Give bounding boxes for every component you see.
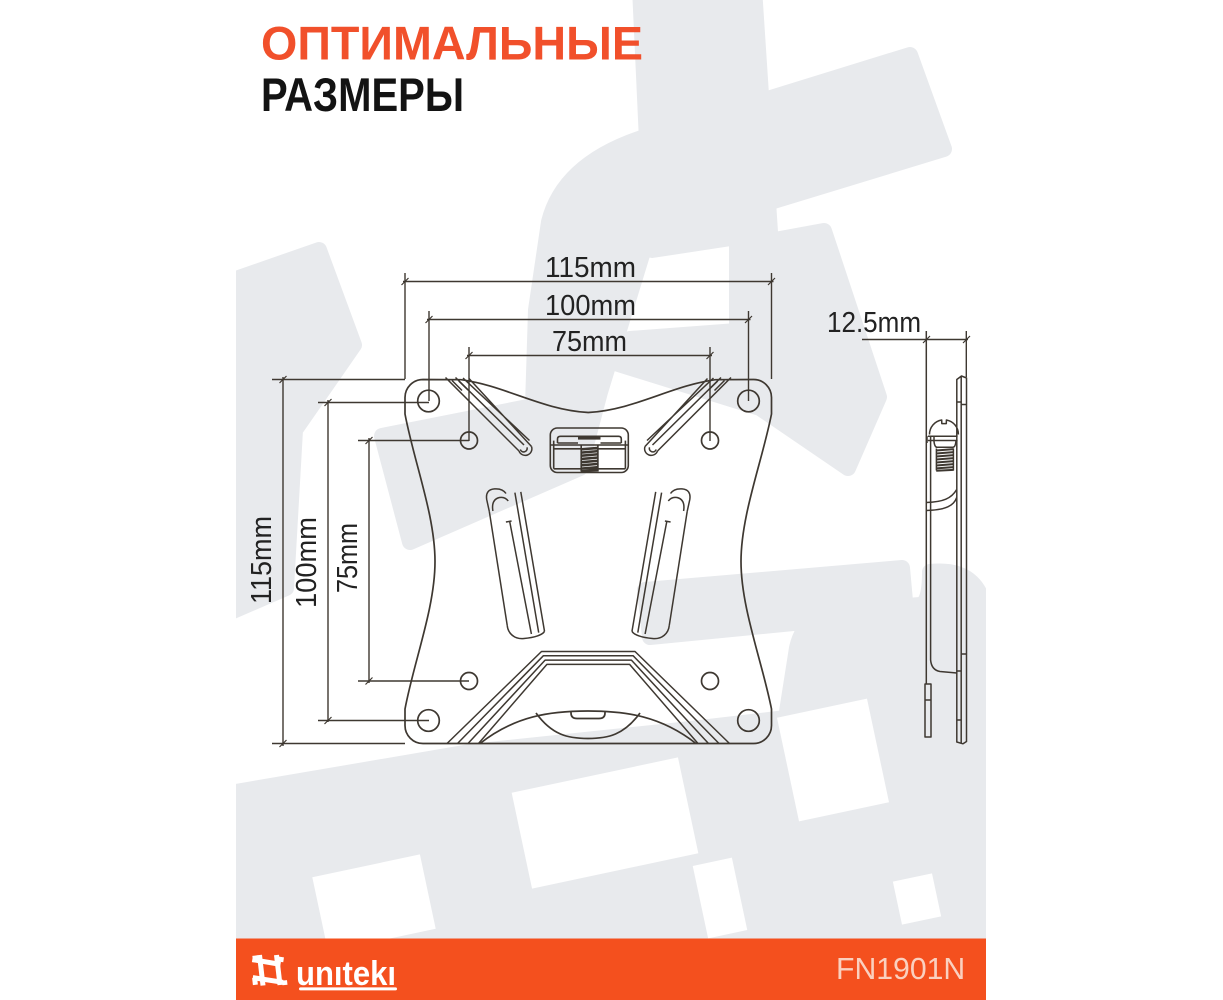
svg-text:FN1901N: FN1901N — [836, 953, 965, 986]
svg-text:12.5mm: 12.5mm — [827, 307, 921, 339]
svg-text:ОПТИМАЛЬНЫЕ: ОПТИМАЛЬНЫЕ — [261, 18, 643, 71]
svg-text:РАЗМЕРЫ: РАЗМЕРЫ — [261, 69, 464, 122]
svg-text:75mm: 75mm — [332, 523, 364, 593]
svg-text:115mm: 115mm — [246, 516, 278, 604]
svg-text:115mm: 115mm — [545, 252, 636, 284]
svg-text:100mm: 100mm — [291, 517, 323, 608]
svg-text:100mm: 100mm — [545, 290, 636, 322]
svg-text:75mm: 75mm — [552, 326, 627, 358]
svg-text:unıtekı: unıtekı — [296, 955, 396, 993]
